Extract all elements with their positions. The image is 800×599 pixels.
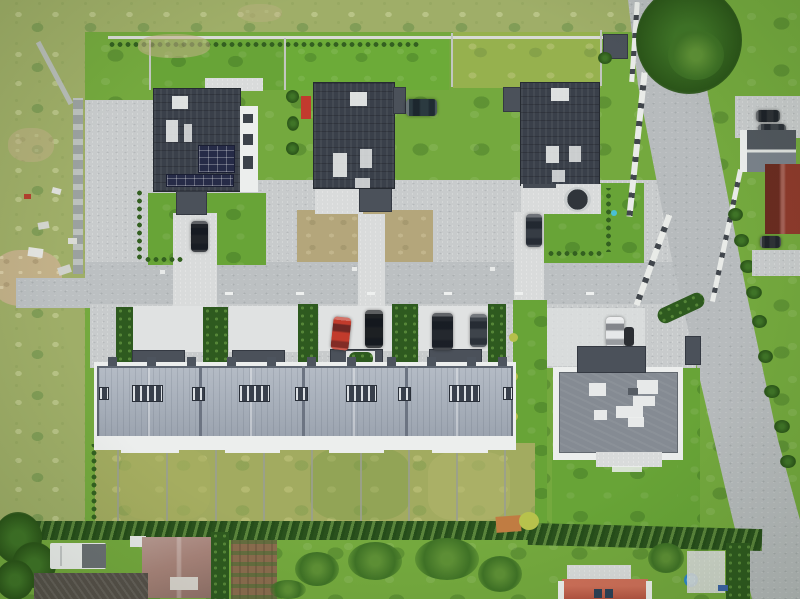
hall-rooftop-unit-3 xyxy=(633,396,655,406)
hot-tub xyxy=(564,187,591,212)
house3-skylight-4 xyxy=(552,170,565,182)
row-chimney-10 xyxy=(467,357,476,366)
garden-divider-6 xyxy=(360,444,362,524)
roadside-bush-6 xyxy=(758,350,773,363)
house3-skylight-3 xyxy=(569,146,581,162)
roadside-bush-4 xyxy=(746,286,762,299)
house2-annex xyxy=(393,87,406,114)
hall-roof-hatch xyxy=(628,388,638,395)
neighbor-gable-wall xyxy=(740,130,747,172)
garden-hedge-dots-left xyxy=(91,444,97,526)
hall-rooftop-unit-2 xyxy=(637,380,658,394)
garden-divider-5 xyxy=(311,444,313,524)
row-bay-1 xyxy=(121,441,179,453)
house3-hedge-dots-v xyxy=(605,188,612,252)
house3-hedge-dots-h xyxy=(546,250,604,257)
boundary-wall-left xyxy=(73,98,83,274)
parked-car-red xyxy=(330,316,351,351)
parked-car-white xyxy=(606,317,624,347)
hall-annex xyxy=(577,346,646,373)
garden-bush-4 xyxy=(478,556,522,592)
row-bay-4 xyxy=(432,441,488,453)
dirt-patch-top-2 xyxy=(238,4,282,22)
row-seam-2 xyxy=(302,366,305,440)
house2-car xyxy=(406,99,437,116)
parked-trailer xyxy=(624,327,634,346)
row-chimney-9 xyxy=(427,357,436,366)
boundary-hedge-row xyxy=(0,521,532,540)
house3-skylight-1 xyxy=(551,88,569,101)
house1-skylight-1 xyxy=(172,96,188,109)
hall-rooftop-unit-5 xyxy=(628,417,644,427)
row-chimney-4 xyxy=(227,357,236,366)
house2-skylight-3 xyxy=(360,149,372,168)
debris-red xyxy=(24,194,31,199)
house1-annex-window-2 xyxy=(243,134,253,145)
road-dash-3 xyxy=(367,292,375,295)
roadside-bush-7 xyxy=(764,385,780,398)
house1-hedge-dots-v xyxy=(136,188,143,262)
house1-skylight-2 xyxy=(166,120,178,142)
parked-car-black xyxy=(365,310,383,348)
row-roof-windows-2 xyxy=(239,385,270,402)
garden-fence-3 xyxy=(451,33,453,87)
row-seam-box-2 xyxy=(295,387,308,401)
house2-skylight-1 xyxy=(350,92,367,106)
house1-skylight-3 xyxy=(184,124,192,142)
house1-annex-window-1 xyxy=(243,114,253,123)
house3-car xyxy=(526,214,542,247)
neighbor-red-roof xyxy=(765,164,800,234)
roadside-bush-9 xyxy=(780,455,796,468)
garden-divider-2 xyxy=(166,444,168,524)
house1-car xyxy=(191,221,208,252)
orange-shed xyxy=(495,515,521,533)
row-chimney-7 xyxy=(347,357,356,366)
hall-terrace xyxy=(596,452,662,467)
row-seam-light-3 xyxy=(353,368,355,440)
mid-bush-1 xyxy=(286,90,299,103)
roadside-bush-8 xyxy=(774,420,790,433)
road-dash-2 xyxy=(296,292,304,295)
road-dash-4 xyxy=(444,292,452,295)
north-garden-3 xyxy=(453,32,601,88)
parked-car-dark xyxy=(432,313,453,350)
garden-bush-6 xyxy=(648,543,684,573)
row-chimney-6 xyxy=(307,357,316,366)
roadside-bush-5 xyxy=(752,315,767,328)
house2-skylight-2 xyxy=(333,153,347,177)
mid-bush-3 xyxy=(286,142,299,155)
parking-hedge-2 xyxy=(203,307,228,369)
street-tree-canopy-2 xyxy=(668,30,724,80)
garden-bush-3 xyxy=(415,538,479,580)
garden-bush-5 xyxy=(270,580,306,599)
garden-divider-8 xyxy=(456,444,458,524)
road-dash-5 xyxy=(515,292,523,295)
row-seam-box-3 xyxy=(398,387,411,401)
row-chimney-1 xyxy=(108,357,117,366)
row-seam-box-1 xyxy=(192,387,205,401)
garden-bush-2 xyxy=(348,542,402,580)
dirt-patch-top xyxy=(138,34,210,58)
house2-skylight-4 xyxy=(355,178,370,188)
house1-solar-array-2 xyxy=(166,174,234,187)
parking-hedge-1 xyxy=(116,307,133,369)
row-seam-1 xyxy=(199,368,202,440)
yellow-shrub-1 xyxy=(509,333,518,342)
row-roof-windows-3 xyxy=(346,385,377,402)
hall-step xyxy=(612,466,642,472)
garden-pool-toy xyxy=(611,210,617,216)
parked-truck-trailer xyxy=(82,544,106,568)
neighbor-yard-paving-2 xyxy=(752,250,800,276)
roadside-bush-2 xyxy=(734,234,749,247)
row-chimney-8 xyxy=(387,357,396,366)
road-dash-6 xyxy=(586,292,594,295)
road-dot-1 xyxy=(352,267,357,271)
red-trailer xyxy=(301,96,311,119)
bin-shelter xyxy=(685,336,701,365)
pink-house-wall xyxy=(170,577,198,590)
shed-bush xyxy=(598,52,612,64)
garden-divider-1 xyxy=(117,444,119,524)
roadside-bush-1 xyxy=(728,208,743,221)
driveway-slab-1 xyxy=(133,306,203,352)
gray-roof-house xyxy=(34,573,148,599)
road-dash-1 xyxy=(225,292,233,295)
blue-object xyxy=(718,585,728,591)
house3-annex xyxy=(503,87,521,112)
row-end-box-west xyxy=(99,387,109,400)
mid-bush-2 xyxy=(287,116,299,131)
driveway-slab-2 xyxy=(229,306,298,352)
hedge-bottom-right xyxy=(726,543,750,599)
row-chimney-5 xyxy=(267,357,276,366)
red-house-wall-left xyxy=(558,581,564,599)
row-seam-light-1 xyxy=(148,368,150,440)
house1-solar-array-1 xyxy=(198,145,235,173)
road-dot-3 xyxy=(160,270,165,274)
garden-divider-7 xyxy=(408,444,410,524)
terrace-row-roof xyxy=(97,366,513,442)
row-roof-windows-1 xyxy=(132,385,163,402)
row-seam-light-2 xyxy=(250,368,252,440)
aerial-estate-photo xyxy=(0,0,800,599)
rear-garden-patch-3 xyxy=(428,452,510,520)
row-chimney-11 xyxy=(498,357,507,366)
debris-5 xyxy=(68,238,77,244)
row-seam-3 xyxy=(405,366,408,440)
road-dot-2 xyxy=(490,267,495,271)
red-house-roof-window-2 xyxy=(605,589,613,598)
row-chimney-2 xyxy=(147,357,156,366)
neighbor-car-1 xyxy=(756,110,780,122)
debris-3 xyxy=(27,247,43,258)
garden-bush-1 xyxy=(295,552,339,586)
truck-detail xyxy=(60,546,62,566)
house2-garage xyxy=(359,185,392,212)
house3-skylight-2 xyxy=(546,146,559,163)
house2-terrace xyxy=(315,186,363,214)
row-end-box-east xyxy=(503,387,513,400)
garden-divider-3 xyxy=(215,444,217,524)
row-chimney-3 xyxy=(187,357,196,366)
tall-hedge-column xyxy=(211,532,229,599)
bottom-tree-3 xyxy=(0,560,34,599)
row-bay-2 xyxy=(225,441,280,453)
hall-rooftop-unit-1 xyxy=(589,383,606,396)
row-seam-light-4 xyxy=(456,368,458,440)
garden-divider-9 xyxy=(504,444,506,524)
entrance-road xyxy=(16,278,88,308)
garden-divider-4 xyxy=(263,444,265,524)
yellow-tree xyxy=(519,512,539,530)
house1-annex-window-3 xyxy=(243,156,253,169)
house1-hedge-dots-h xyxy=(143,256,185,263)
garden-fence-2 xyxy=(284,38,286,90)
dirt-patch-left-2 xyxy=(8,128,54,162)
hall-rooftop-unit-6 xyxy=(594,410,607,420)
parked-car-gray xyxy=(470,314,487,347)
red-house-wall-right xyxy=(646,581,652,599)
row-roof-windows-4 xyxy=(449,385,480,402)
neighbor-car-3 xyxy=(760,236,781,248)
row-bay-3 xyxy=(329,441,384,453)
house3-garage-edge xyxy=(523,184,556,188)
house1-garage xyxy=(176,191,207,215)
rear-garden-patch-1 xyxy=(120,448,210,520)
red-house-roof-window-1 xyxy=(594,589,602,598)
